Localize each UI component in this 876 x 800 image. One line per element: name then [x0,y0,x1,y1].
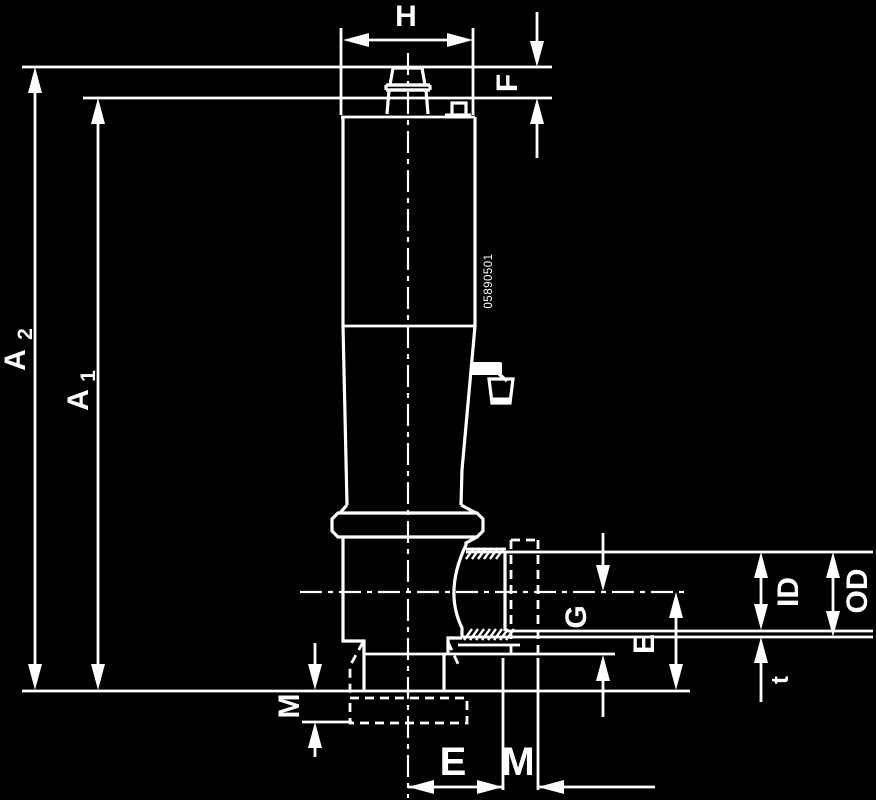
extension-lines [22,67,873,790]
dimension-A2: A 2 [0,67,42,690]
label-M-bottom: M [501,740,534,784]
part-marking-text: 05890501 [483,253,495,308]
dimension-OD: OD [826,552,874,637]
label-H: H [395,0,417,33]
label-A2-sub: 2 [14,328,37,340]
dimension-E-right: E [628,592,683,690]
dimension-M-left: M [273,643,322,757]
dimension-M-bottom: M [501,740,655,794]
label-A1-sub: 1 [77,370,100,382]
dimension-G: G [560,533,610,717]
dimension-A1: A 1 [62,98,105,690]
part-outline [332,68,513,691]
label-G: G [560,605,593,628]
label-E-right: E [628,634,661,654]
dimension-F: F [491,12,544,158]
hidden-lines [350,540,538,723]
label-OD: OD [841,569,874,614]
label-F: F [491,74,524,92]
technical-drawing-page: H F A 2 A 1 G E ID [0,0,876,800]
label-t: t [767,676,794,684]
dimension-t: t [754,637,794,702]
drawing-canvas: H F A 2 A 1 G E ID [0,0,876,800]
label-ID: ID [772,577,805,607]
side-fitting [471,362,513,403]
label-M-left: M [273,694,306,719]
dimension-ID: ID [754,552,805,630]
dimension-E-bottom: E [408,740,503,794]
label-A2: A [0,349,32,371]
label-E-bottom: E [440,740,467,784]
label-A1: A [62,389,95,411]
